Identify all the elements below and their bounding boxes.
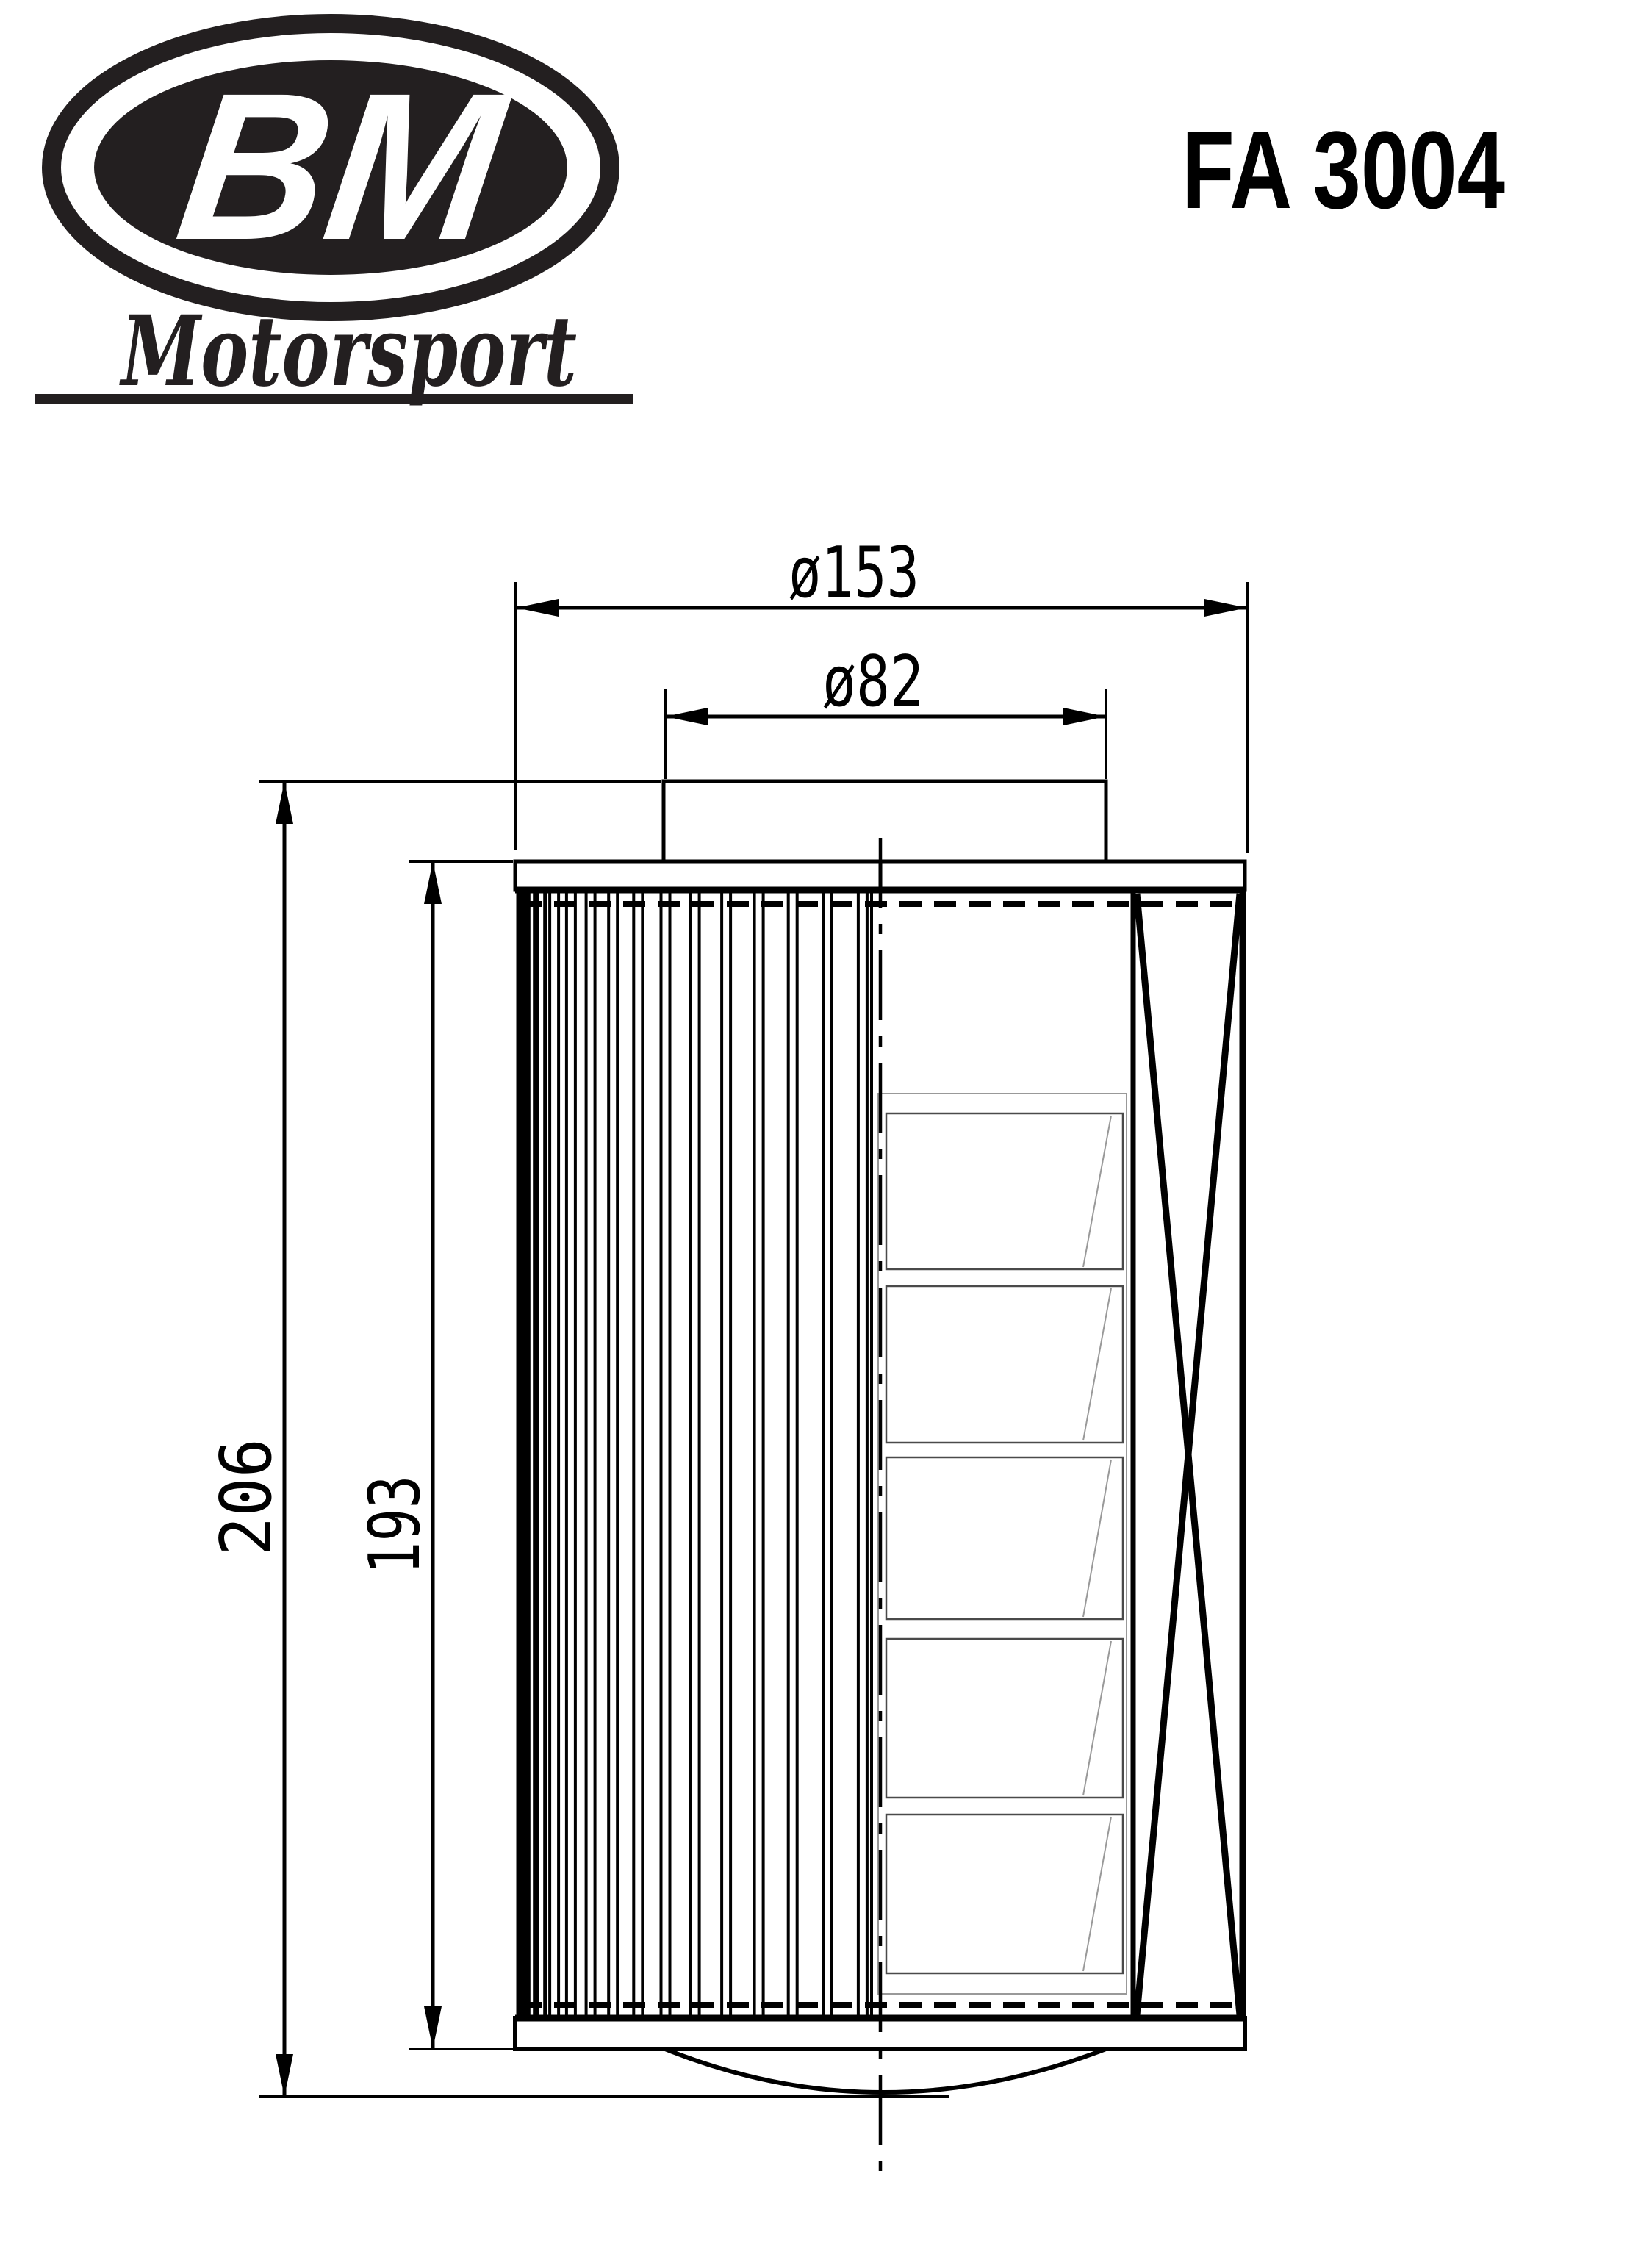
dimension-label-element-height: 193 (355, 1476, 436, 1575)
dimension-label-outer-diameter: ø153 (789, 533, 919, 614)
dimension-overall-height: 206 (206, 781, 949, 2097)
arrowhead-left (516, 599, 559, 617)
pleat-lines (525, 890, 872, 2018)
dimension-inner-diameter: ø82 (665, 642, 1106, 779)
arrowhead-bottom (276, 2054, 293, 2097)
arrowhead-top (276, 781, 293, 824)
arrowhead-bottom (424, 2006, 442, 2049)
filter-drawing: ø153 ø82 206 193 (206, 533, 1247, 2177)
arrowhead-right (1063, 708, 1106, 725)
dimension-label-overall-height: 206 (206, 1438, 287, 1556)
brand-logo: BM Motorsport (35, 24, 633, 409)
arrowhead-left (665, 708, 708, 725)
dimension-label-inner-diameter: ø82 (822, 642, 924, 722)
part-number: FA 3004 (1182, 108, 1505, 232)
drawing-sheet: BM Motorsport FA 3004 (0, 0, 1652, 2243)
arrowhead-right (1204, 599, 1247, 617)
bottom-dome-curve (665, 2049, 1106, 2092)
technical-drawing-canvas: BM Motorsport FA 3004 (0, 0, 1652, 2243)
logo-motorsport-text: Motorsport (119, 295, 577, 409)
logo-bm-text: BM (166, 49, 520, 283)
dimension-element-height: 193 (355, 861, 513, 2049)
arrowhead-top (424, 861, 442, 904)
pleat-section-boxes (886, 1113, 1123, 1973)
top-cap-outline (664, 781, 1106, 861)
